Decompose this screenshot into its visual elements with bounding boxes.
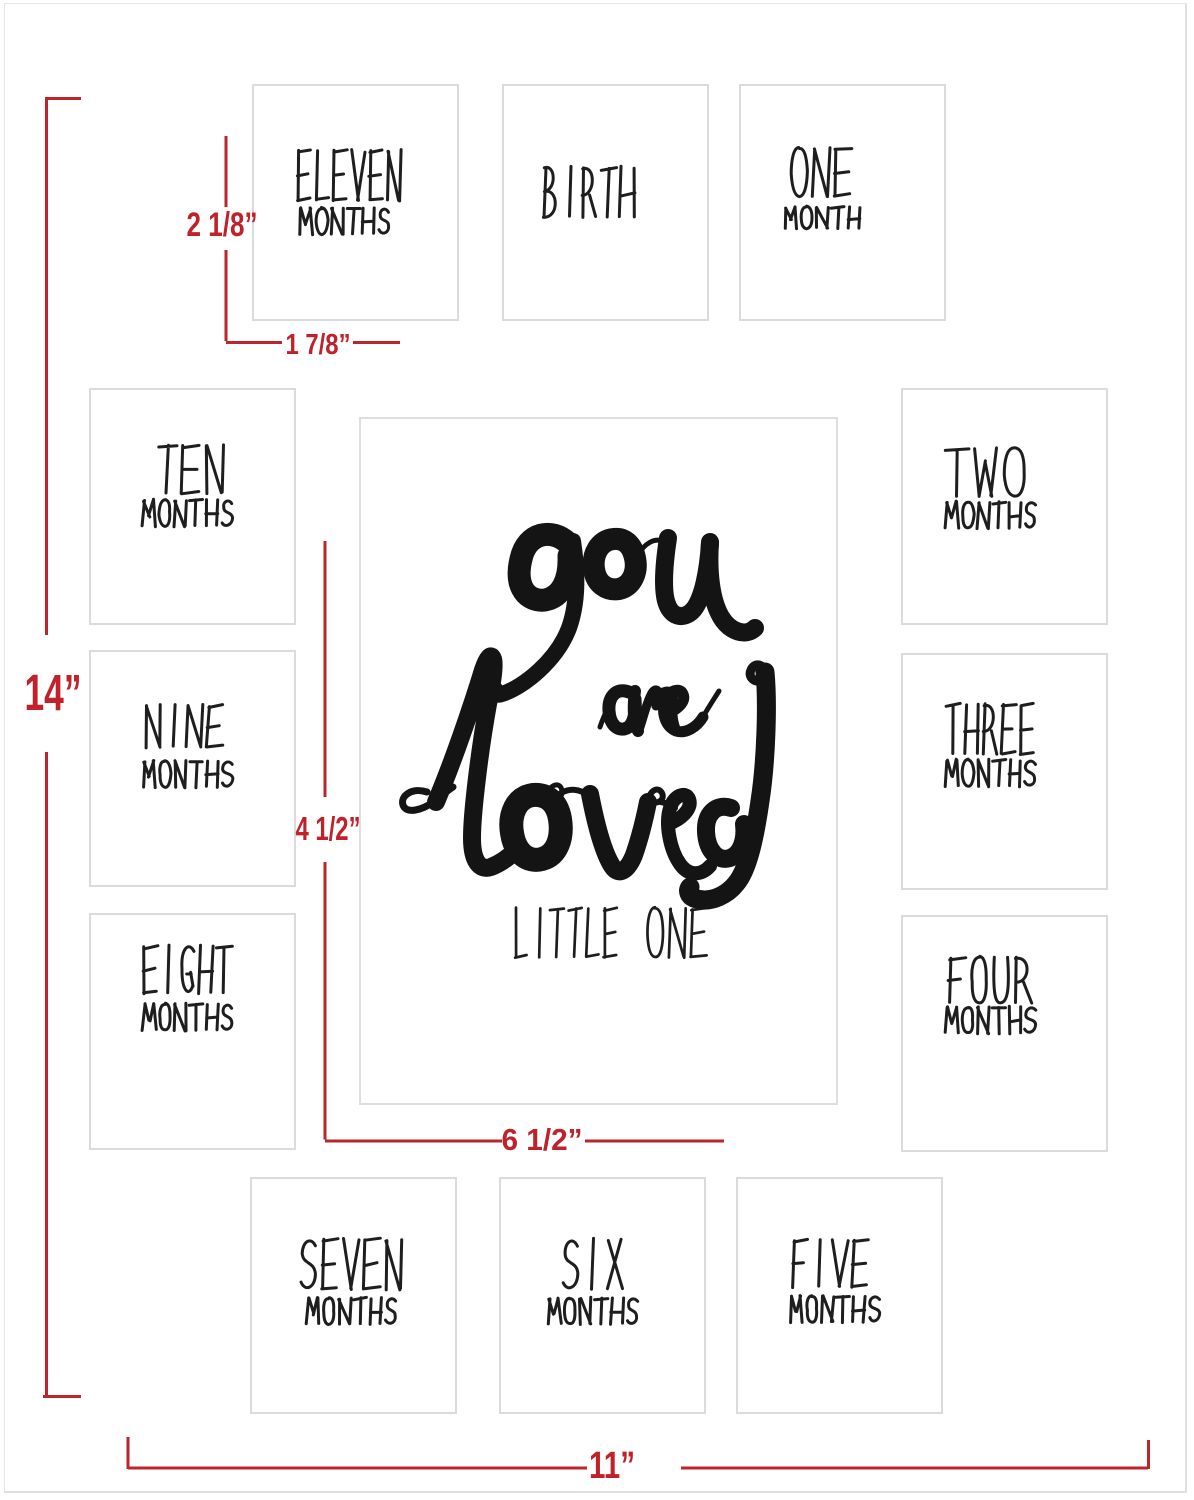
svg-text:2 1/8”: 2 1/8” [187, 206, 258, 244]
svg-text:11”: 11” [589, 1445, 635, 1487]
svg-text:14”: 14” [25, 664, 82, 721]
svg-text:4 1/2”: 4 1/2” [296, 810, 361, 847]
svg-text:1 7/8”: 1 7/8” [286, 329, 351, 361]
svg-text:6 1/2”: 6 1/2” [502, 1122, 583, 1157]
